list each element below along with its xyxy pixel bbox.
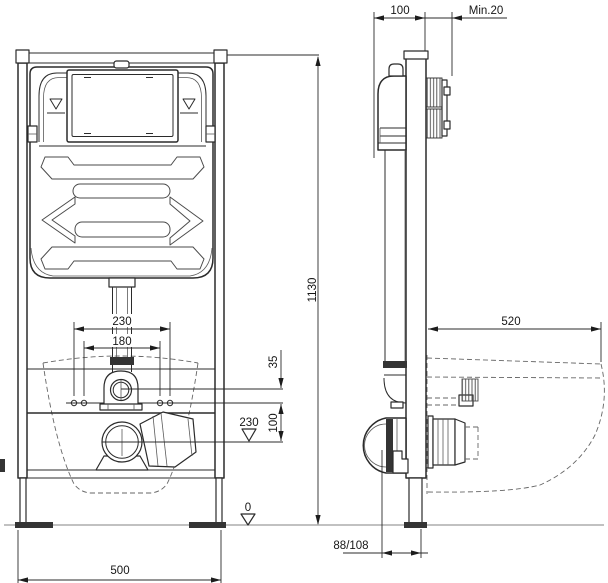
foot-plate-left xyxy=(15,522,53,528)
frame-foot-side xyxy=(409,478,422,523)
level-label-drain: 230 xyxy=(239,417,258,429)
wall-anchors xyxy=(426,78,450,138)
level-triangle-icon xyxy=(241,514,255,525)
flush-clamp-side xyxy=(383,361,407,368)
drain-trap-side xyxy=(363,418,408,473)
bowl-inlet-spigot xyxy=(462,379,478,401)
dim-label-drain-distance: 88/108 xyxy=(333,540,368,552)
frame-foot-left xyxy=(20,478,26,523)
dim-label-spacing-inner: 180 xyxy=(112,336,131,348)
dim-bowl-projection: 520 xyxy=(428,316,601,362)
cistern-cap-side xyxy=(389,64,403,76)
dim-label-fixing-to-drain: 100 xyxy=(268,413,280,432)
foot-plate-right xyxy=(189,522,226,528)
frame-foot-right xyxy=(216,478,222,523)
frame-cap-right xyxy=(214,50,227,63)
drain-front xyxy=(96,412,196,470)
frame-upright-right xyxy=(215,63,224,478)
frame-cap-left xyxy=(16,50,29,63)
anchor-rod-lower xyxy=(426,109,442,138)
flush-bend-side xyxy=(384,378,406,403)
level-triangle-icon xyxy=(242,429,256,441)
foot-plate-side xyxy=(404,522,427,528)
frame-rail-side xyxy=(406,58,426,478)
frame-upright-left xyxy=(18,63,27,478)
flush-pipe-clamp xyxy=(110,357,134,365)
cistern-front xyxy=(28,61,215,278)
level-marker-drain: 230 xyxy=(239,417,258,441)
dim-label-flush-offset: 35 xyxy=(268,356,280,369)
level-marker-floor: 0 xyxy=(241,502,255,525)
dim-label-frame-height: 1130 xyxy=(307,278,319,303)
cistern-top-button xyxy=(114,61,129,68)
trap-band xyxy=(386,419,393,472)
dim-label-spacing-outer: 230 xyxy=(112,316,131,328)
drain-outlet-side xyxy=(428,416,478,468)
dim-label-frame-depth: 100 xyxy=(390,5,409,17)
front-view xyxy=(0,50,227,528)
dim-label-bowl-projection: 520 xyxy=(501,316,520,328)
flush-pipe-side xyxy=(383,150,478,408)
frame-side xyxy=(404,51,428,528)
technical-drawing-canvas: 100 Min.20 1130 230 180 xyxy=(0,0,608,583)
dim-label-wall-clearance: Min.20 xyxy=(469,5,504,17)
dim-frame-width: 500 xyxy=(18,530,221,583)
level-label-floor: 0 xyxy=(245,502,251,514)
drain-offset-pipe xyxy=(140,412,196,467)
anchor-rod-upper xyxy=(426,78,442,107)
edge-fragment xyxy=(0,459,5,472)
cistern-side xyxy=(378,64,406,150)
outlet-flange xyxy=(428,416,433,468)
access-window xyxy=(67,70,178,142)
dim-label-frame-width: 500 xyxy=(110,565,129,577)
frame-rail-cap xyxy=(404,51,428,59)
installation-frame-drawing: 100 Min.20 1130 230 180 xyxy=(0,0,608,583)
side-view xyxy=(363,51,604,528)
dim-frame-height: 1130 xyxy=(227,55,321,525)
